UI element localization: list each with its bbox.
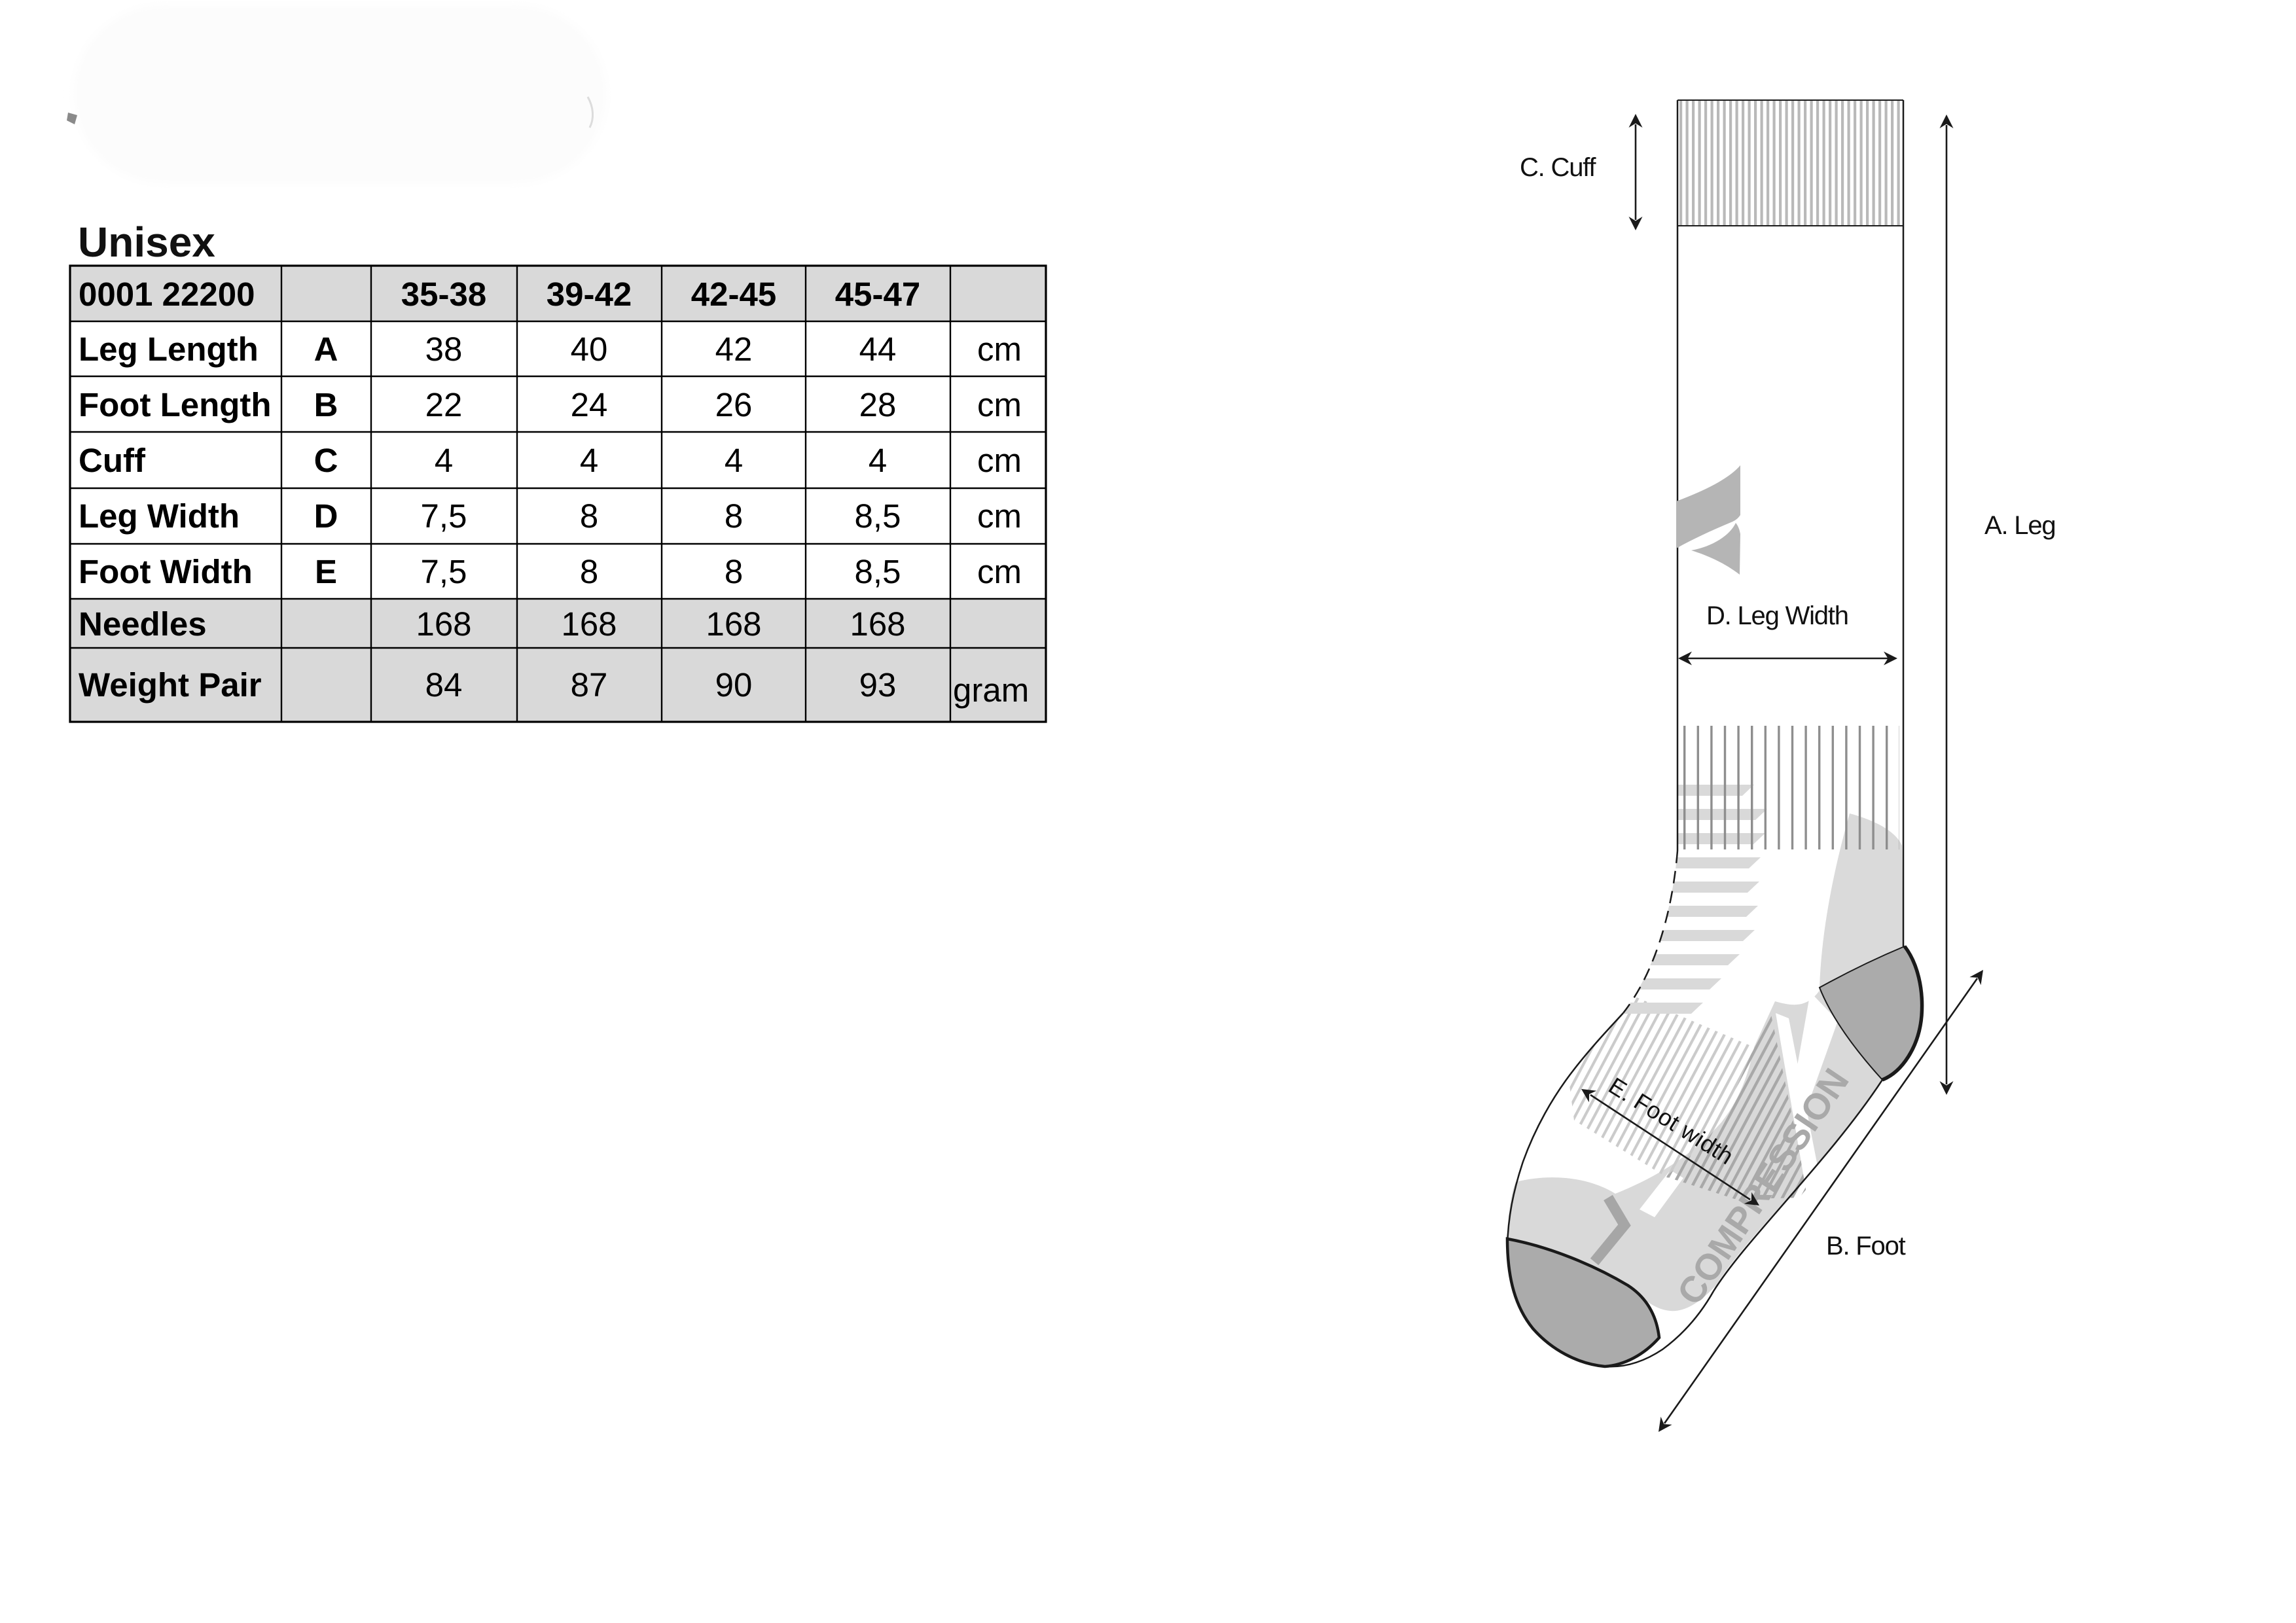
svg-text:42: 42 — [715, 330, 753, 368]
svg-text:cm: cm — [977, 553, 1022, 590]
svg-text:84: 84 — [425, 666, 463, 704]
svg-text:D. Leg Width: D. Leg Width — [1706, 601, 1848, 630]
svg-text:D: D — [314, 497, 338, 535]
svg-text:Needles: Needles — [79, 605, 207, 643]
svg-text:Cuff: Cuff — [79, 442, 146, 479]
svg-text:4: 4 — [435, 442, 453, 479]
svg-text:E: E — [315, 553, 337, 590]
svg-text:22: 22 — [425, 386, 463, 423]
svg-text:cm: cm — [977, 386, 1022, 423]
svg-text:8: 8 — [580, 553, 598, 590]
svg-text:4: 4 — [725, 442, 743, 479]
svg-text:42-45: 42-45 — [691, 276, 776, 313]
svg-text:Unisex: Unisex — [78, 219, 215, 266]
svg-text:B: B — [314, 386, 338, 423]
svg-text:7,5: 7,5 — [421, 553, 467, 590]
svg-text:A. Leg: A. Leg — [1984, 511, 2055, 540]
svg-text:93: 93 — [859, 666, 897, 704]
svg-text:7,5: 7,5 — [421, 497, 467, 535]
svg-text:28: 28 — [859, 386, 897, 423]
svg-text:24: 24 — [571, 386, 608, 423]
svg-text:B. Foot: B. Foot — [1826, 1232, 1906, 1260]
svg-text:35-38: 35-38 — [401, 276, 486, 313]
svg-text:8,5: 8,5 — [855, 553, 901, 590]
svg-text:A: A — [314, 330, 338, 368]
svg-text:0001 22200: 0001 22200 — [79, 276, 255, 313]
svg-text:cm: cm — [977, 330, 1022, 368]
svg-text:Leg Width: Leg Width — [79, 497, 240, 535]
svg-text:87: 87 — [571, 666, 608, 704]
svg-text:Leg Length: Leg Length — [79, 330, 259, 368]
svg-text:C. Cuff: C. Cuff — [1520, 153, 1596, 182]
svg-text:40: 40 — [571, 330, 608, 368]
svg-text:Foot Length: Foot Length — [79, 386, 272, 423]
svg-text:8,5: 8,5 — [855, 497, 901, 535]
svg-text:26: 26 — [715, 386, 753, 423]
svg-text:39-42: 39-42 — [547, 276, 632, 313]
svg-text:168: 168 — [850, 605, 905, 643]
svg-text:4: 4 — [869, 442, 887, 479]
svg-text:8: 8 — [580, 497, 598, 535]
svg-text:8: 8 — [725, 553, 743, 590]
svg-text:8: 8 — [725, 497, 743, 535]
svg-text:Foot Width: Foot Width — [79, 553, 253, 590]
svg-text:cm: cm — [977, 497, 1022, 535]
svg-text:C: C — [314, 442, 338, 479]
svg-text:Weight Pair: Weight Pair — [79, 666, 262, 704]
svg-text:gram: gram — [953, 671, 1029, 709]
svg-text:90: 90 — [715, 666, 753, 704]
svg-text:168: 168 — [706, 605, 761, 643]
svg-text:44: 44 — [859, 330, 897, 368]
svg-text:38: 38 — [425, 330, 463, 368]
svg-text:4: 4 — [580, 442, 598, 479]
svg-text:168: 168 — [561, 605, 617, 643]
svg-text:cm: cm — [977, 442, 1022, 479]
svg-text:168: 168 — [416, 605, 471, 643]
svg-text:45-47: 45-47 — [835, 276, 920, 313]
